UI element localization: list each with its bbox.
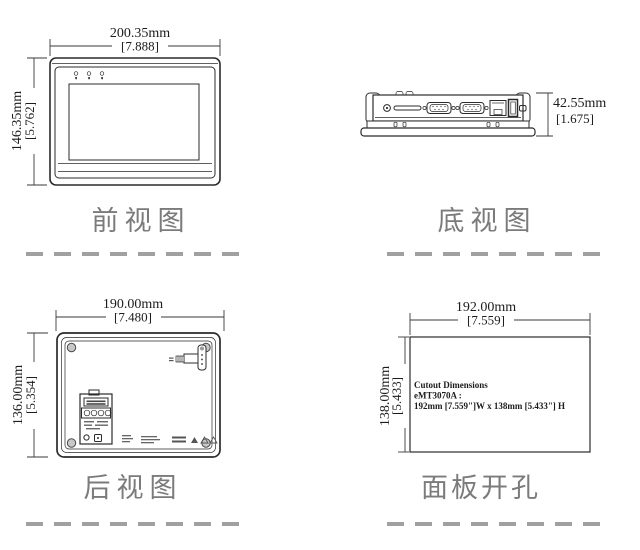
cutout-width-dimension: 192.00mm [7.559] [410, 300, 590, 335]
rear-height-dimension: 136.00mm [5.354] [11, 333, 48, 457]
dimension-drawing-page: 200.35mm [7.888] 146.35mm [5.762] [0, 0, 640, 550]
rear-view: 190.00mm [7.480] 136.00mm [5.354] [11, 297, 224, 457]
bezel-band [367, 121, 529, 128]
bottom-depth-dimension: 42.55mm [1.675] [536, 93, 606, 136]
cutout-height-inch: [5.433] [389, 377, 404, 415]
cutout-height-dimension: 138.00mm [5.433] [378, 337, 409, 452]
separator-dash-bottom-left [26, 522, 249, 526]
bottom-device-drawing [361, 92, 535, 137]
rear-height-inch: [5.354] [23, 376, 38, 414]
cutout-note-line2: eMT3070A : [414, 391, 462, 401]
bottom-view-label: 底视图 [377, 207, 597, 237]
front-view: 200.35mm [7.888] 146.35mm [5.762] [10, 26, 220, 185]
rear-view-label: 后视图 [23, 474, 243, 504]
cutout-rectangle: Cutout Dimensions eMT3070A : 192mm [7.55… [410, 337, 590, 452]
front-height-inch: [5.762] [22, 102, 37, 140]
rear-width-inch: [7.480] [114, 310, 152, 325]
technical-drawing: 200.35mm [7.888] 146.35mm [5.762] [0, 0, 640, 550]
cutout-width-inch: [7.559] [467, 313, 505, 328]
rear-panel-drawing [57, 333, 220, 457]
cutout-view: 192.00mm [7.559] 138.00mm [5.433] Cutout… [378, 300, 590, 452]
front-rim [361, 128, 535, 136]
front-panel-drawing [50, 58, 220, 185]
front-height-dimension: 146.35mm [5.762] [10, 58, 47, 185]
front-view-label: 前视图 [31, 207, 251, 237]
separator-dash-top-left [26, 252, 249, 256]
bottom-depth-mm: 42.55mm [553, 96, 606, 111]
cutout-note-line1: Cutout Dimensions [414, 380, 488, 390]
rear-width-dimension: 190.00mm [7.480] [56, 297, 224, 331]
separator-dash-bottom-right [387, 522, 605, 526]
separator-dash-top-right [387, 252, 605, 256]
front-width-inch: [7.888] [121, 39, 159, 54]
front-width-dimension: 200.35mm [7.888] [50, 26, 220, 56]
cutout-note-line3: 192mm [7.559"]W x 138mm [5.433"] H [414, 401, 565, 411]
cutout-view-label: 面板开孔 [371, 474, 591, 504]
bottom-view: 42.55mm [1.675] [361, 92, 606, 137]
bottom-depth-inch: [1.675] [556, 111, 594, 126]
